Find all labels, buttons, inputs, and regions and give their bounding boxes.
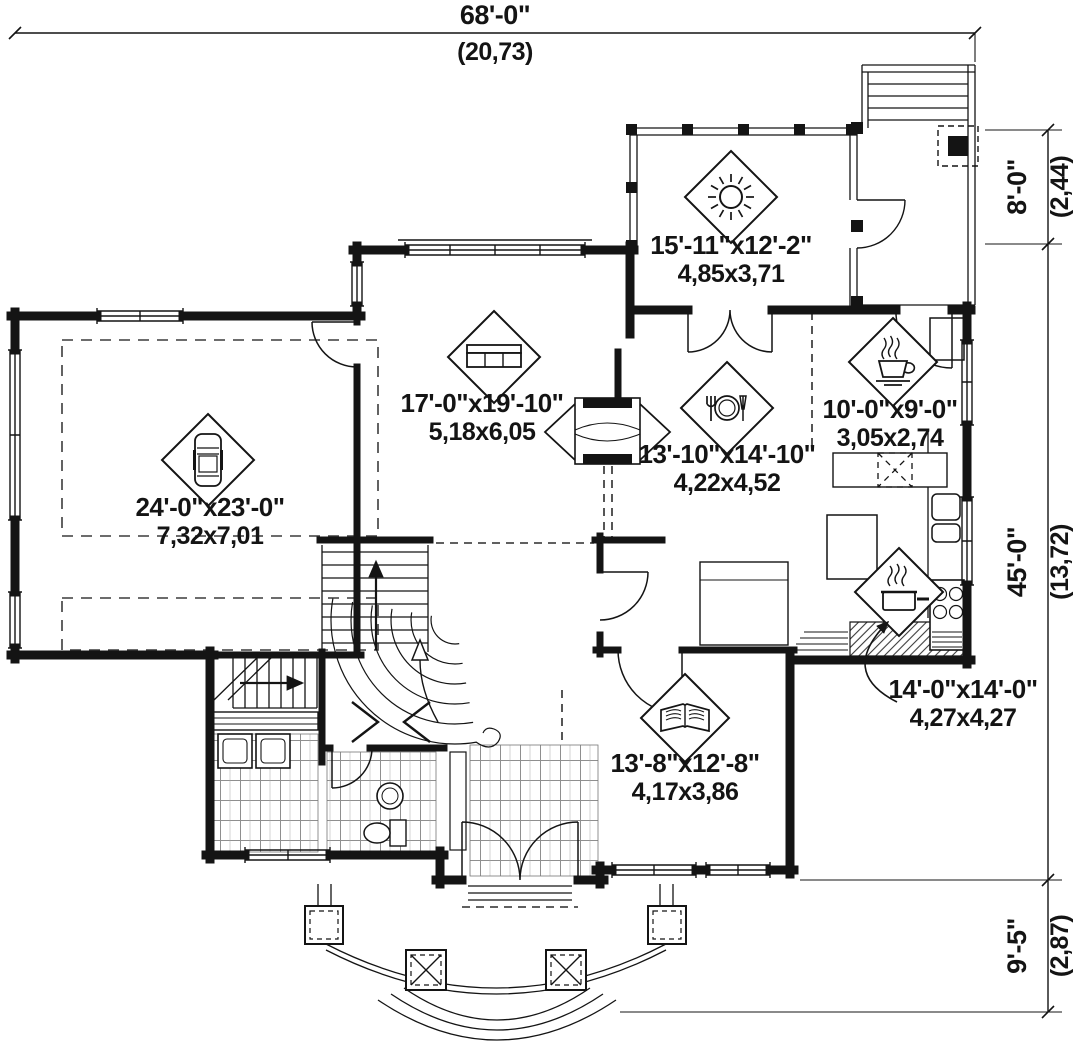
dining-label-group: 13'-10"x14'-10" 4,22x4,52 [639, 362, 816, 497]
den-dims-metric: 4,17x3,86 [632, 778, 739, 806]
dimension-top: 68'-0" (20,73) [9, 0, 981, 66]
garage-left-window-2 [8, 592, 22, 648]
kitchen-sink-bowl-2 [932, 524, 960, 542]
floor-plan: 15'-11"x12'-2" 4,85x3,71 17'-0"x19'-10" … [0, 0, 1080, 1043]
overall-width-metric: (20,73) [457, 38, 533, 66]
deck-depth-metric: (2,44) [1046, 156, 1074, 218]
sunroom-double-doors [688, 310, 772, 352]
laundry-counter [212, 712, 318, 730]
stair-volute [476, 728, 500, 747]
porch-columns [305, 906, 686, 990]
living-dims-metric: 5,18x6,05 [429, 418, 536, 446]
bifold-closet-doors [352, 702, 430, 742]
deck [851, 65, 978, 308]
house-depth-metric: (13,72) [1046, 524, 1074, 600]
kitchen-dims-metric: 4,27x4,27 [910, 704, 1017, 732]
porch-depth-metric: (2,87) [1046, 915, 1074, 977]
den-closet [700, 562, 788, 645]
kitchen-counter-steps [792, 632, 848, 650]
garage-left-window-1 [8, 350, 22, 520]
sunroom-label-group: 15'-11"x12'-2" 4,85x3,71 [650, 151, 812, 288]
den-label-group: 13'-8"x12'-8" 4,17x3,86 [610, 674, 759, 806]
overall-width-imperial: 68'-0" [460, 0, 530, 30]
toilet-bowl [364, 823, 390, 843]
staircase-straight-down [214, 657, 317, 708]
garage-entry-door [312, 322, 357, 367]
entry-steps [468, 886, 572, 900]
foyer-tile-floor [470, 745, 598, 876]
porch-depth-imperial: 9'-5" [1002, 918, 1032, 974]
den-bottom-window-1 [612, 862, 696, 878]
toilet-tank [390, 820, 406, 846]
breakfast-dims-imperial: 10'-0"x9'-0" [822, 394, 957, 424]
bath-bottom-window [245, 847, 330, 863]
kitchen-right-window-2 [960, 497, 974, 585]
sunroom-dims-metric: 4,85x3,71 [678, 260, 785, 288]
living-dims-imperial: 17'-0"x19'-10" [400, 388, 563, 418]
house-depth-imperial: 45'-0" [1002, 527, 1032, 597]
living-side-window [350, 262, 364, 306]
hall-door [600, 572, 648, 620]
kitchen-right-window-1 [960, 340, 974, 425]
sunroom-dims-imperial: 15'-11"x12'-2" [650, 230, 812, 260]
coffee-icon [849, 318, 937, 406]
refrigerator [930, 318, 964, 360]
porch-step-1 [404, 988, 590, 1020]
garage-dims-metric: 7,32x7,01 [157, 522, 264, 550]
kitchen-dims-imperial: 14'-0"x14'-0" [888, 674, 1037, 704]
kitchen-sink-bowl-1 [932, 494, 960, 520]
living-top-window [398, 240, 592, 258]
kitchen-island [827, 515, 877, 579]
garage-label-group: 24'-0"x23'-0" 7,32x7,01 [135, 414, 284, 550]
kitchen-peninsula [833, 453, 947, 487]
cased-opening [450, 752, 466, 850]
living-label-group: 17'-0"x19'-10" 5,18x6,05 [400, 311, 563, 446]
deck-depth-imperial: 8'-0" [1002, 159, 1032, 215]
deck-column [948, 136, 968, 156]
den-bottom-window-2 [706, 862, 770, 878]
den-dims-imperial: 13'-8"x12'-8" [610, 748, 759, 778]
sunroom-deck-door [857, 200, 905, 248]
dining-dims-imperial: 13'-10"x14'-10" [639, 439, 816, 469]
garage-top-window [97, 308, 183, 324]
floor-plan-canvas: 15'-11"x12'-2" 4,85x3,71 17'-0"x19'-10" … [0, 0, 1080, 1043]
dining-dims-metric: 4,22x4,52 [674, 469, 781, 497]
breakfast-dims-metric: 3,05x2,74 [837, 424, 944, 452]
garage-dims-imperial: 24'-0"x23'-0" [135, 492, 284, 522]
